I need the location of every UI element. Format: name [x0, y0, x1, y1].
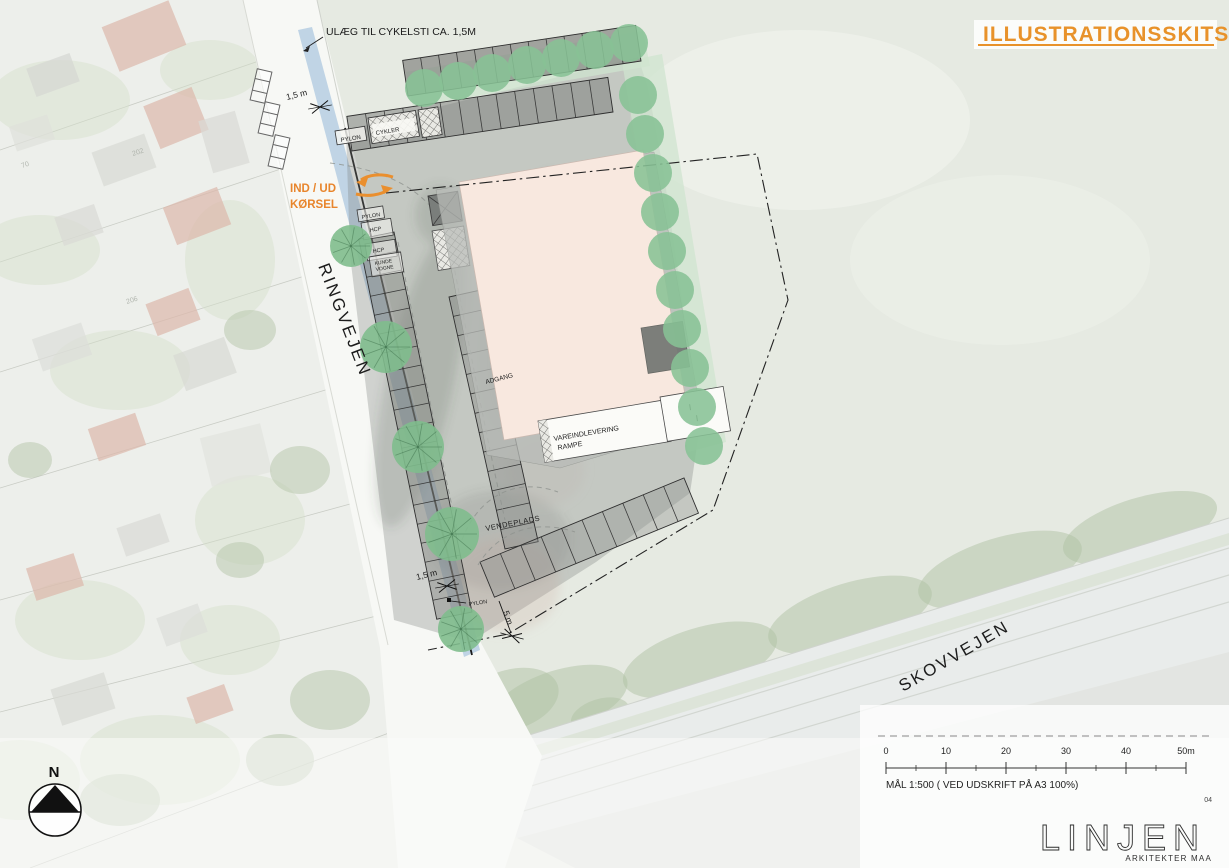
- field-light-patch: [850, 175, 1150, 345]
- site-plan-sheet: ULÆG TIL CYKELSTI CA. 1,5M IND / UD KØRS…: [0, 0, 1229, 868]
- garden-tree: [216, 542, 264, 578]
- tree: [626, 115, 664, 153]
- title-block: ILLUSTRATIONSSKITSE: [974, 20, 1229, 49]
- tree-detailed: [392, 421, 444, 473]
- tree: [656, 271, 694, 309]
- site-plan-drawing: ULÆG TIL CYKELSTI CA. 1,5M IND / UD KØRS…: [0, 0, 1229, 868]
- tree: [641, 193, 679, 231]
- drawing-title: ILLUSTRATIONSSKITSE: [983, 23, 1229, 46]
- tree: [473, 54, 511, 92]
- logo-text: LINJEN: [1040, 817, 1206, 858]
- garden-tree: [270, 446, 330, 494]
- scale-tick-label: 50m: [1177, 746, 1195, 756]
- page-number: 04: [1204, 797, 1212, 804]
- tree: [576, 31, 614, 69]
- north-label: N: [49, 764, 60, 781]
- tree: [508, 46, 546, 84]
- tree-detailed: [438, 606, 484, 652]
- tree: [678, 388, 716, 426]
- tree-detailed: [330, 225, 372, 267]
- cycle-path-note: ULÆG TIL CYKELSTI CA. 1,5M: [326, 26, 476, 38]
- tree-detailed: [425, 507, 479, 561]
- scale-caption: MÅL 1:500 ( VED UDSKRIFT PÅ A3 100%): [886, 778, 1078, 791]
- garden-tree: [8, 442, 52, 478]
- tree: [634, 154, 672, 192]
- tree: [685, 427, 723, 465]
- scale-tick-label: 20: [1001, 746, 1011, 756]
- in-out-label-line2: KØRSEL: [290, 199, 338, 211]
- garden-tree: [224, 310, 276, 350]
- tree: [663, 310, 701, 348]
- bike-parking-box-2: [418, 107, 442, 138]
- tree: [405, 69, 443, 107]
- garden-tree: [290, 670, 370, 730]
- tree: [671, 349, 709, 387]
- scale-tick-label: 30: [1061, 746, 1071, 756]
- tree: [439, 62, 477, 100]
- logo-subtitle: ARKITEKTER MAA: [1125, 854, 1212, 863]
- scale-tick-label: 40: [1121, 746, 1131, 756]
- tree: [610, 24, 648, 62]
- in-out-label-line1: IND / UD: [290, 183, 336, 195]
- tree: [542, 39, 580, 77]
- tree: [619, 76, 657, 114]
- scale-tick-label: 0: [883, 746, 888, 756]
- tree: [648, 232, 686, 270]
- scale-tick-label: 10: [941, 746, 951, 756]
